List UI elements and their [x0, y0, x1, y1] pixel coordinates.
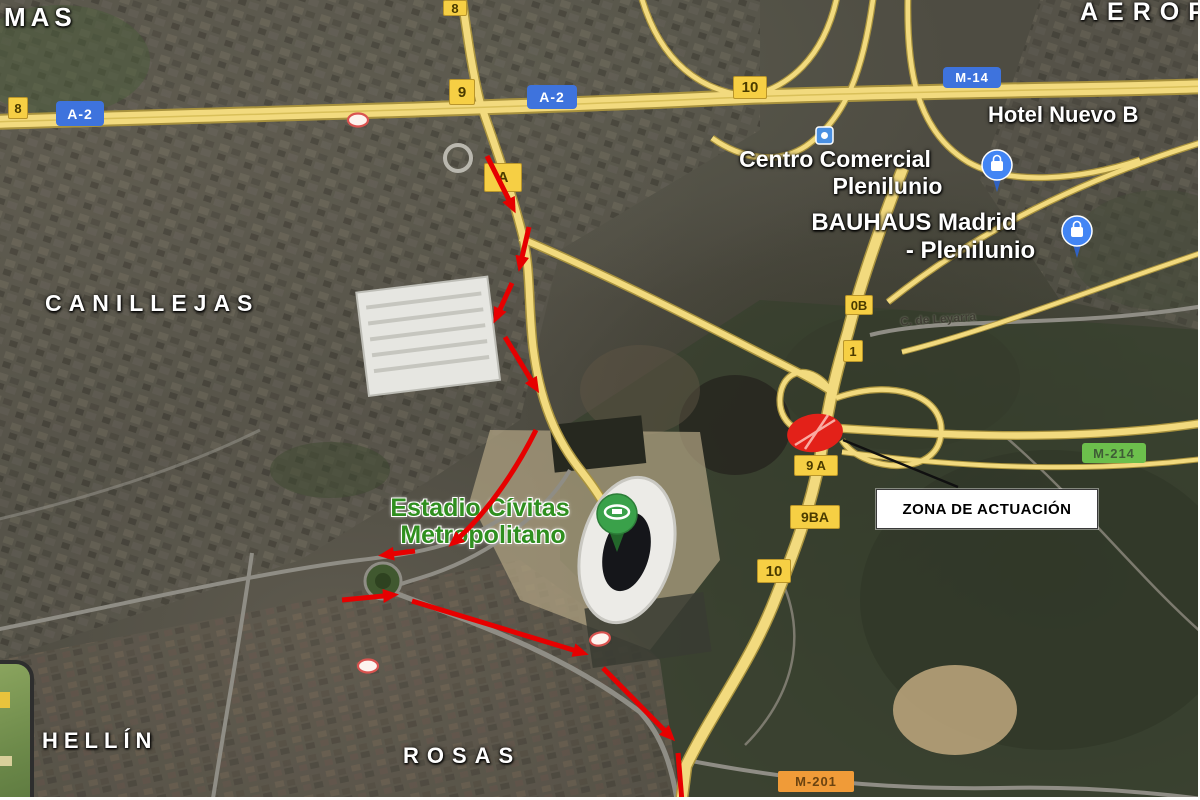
- poi-label-estadio-2: Metropolitano: [363, 521, 603, 550]
- district-label-canillejas: CANILLEJAS: [45, 290, 259, 317]
- district-label-rosas: ROSAS: [403, 743, 521, 769]
- stadium-pin[interactable]: [597, 494, 637, 552]
- street-label-leyarra: C. de Leyarra: [900, 309, 977, 328]
- route-badge-m14: M-14: [943, 67, 1001, 88]
- route-arrows: [342, 156, 682, 797]
- poi-label-bauhaus: BAUHAUS Madrid: [783, 209, 1045, 237]
- roundabout: [445, 145, 471, 171]
- buildings: [356, 277, 711, 668]
- poi-label-bauhaus-2: - Plenilunio: [858, 237, 1083, 265]
- map-inset-corner[interactable]: [0, 660, 34, 797]
- inset-road: [0, 692, 10, 708]
- route-badge-m201: M-201: [778, 771, 854, 792]
- screenshot: MAS AEROP Hotel Nuevo B Centro Comercial…: [0, 0, 1200, 800]
- exit-badge-10-top: 10: [733, 76, 767, 99]
- district-label-hellin: HELLÍN: [42, 728, 157, 754]
- route-badge-m214: M-214: [1082, 443, 1146, 463]
- poi-label-estadio-1: Estadio Cívitas: [360, 494, 600, 523]
- district-label-mas: MAS: [4, 2, 77, 33]
- satellite-map[interactable]: MAS AEROP Hotel Nuevo B Centro Comercial…: [0, 0, 1198, 797]
- exit-badge-9ba: 9BA: [790, 505, 840, 529]
- callout-pointer-line: [843, 440, 958, 487]
- route-badge-a2-left: A-2: [56, 101, 104, 126]
- district-label-aerop: AEROP: [1080, 0, 1198, 27]
- exit-badge-0b: 0B: [845, 295, 873, 315]
- exit-badge-8-top: 8: [443, 0, 467, 16]
- inset-road-2: [0, 756, 12, 766]
- exit-badge-a: A: [484, 163, 522, 192]
- zona-de-actuacion-callout: ZONA DE ACTUACIÓN: [876, 489, 1098, 529]
- exit-badge-9: 9: [449, 79, 475, 105]
- poi-label-centro-comercial: Centro Comercial: [700, 146, 970, 173]
- exit-badge-10-mid: 10: [757, 559, 791, 583]
- route-badge-a2-center: A-2: [527, 85, 577, 109]
- local-roads: [0, 305, 1198, 797]
- zona-ellipse: [785, 410, 846, 455]
- poi-label-plenilunio: Plenilunio: [775, 173, 1000, 200]
- poi-square-icon[interactable]: [816, 127, 833, 144]
- stadium: [564, 467, 689, 633]
- poi-label-hotel-nuevo: Hotel Nuevo B: [988, 102, 1138, 128]
- exit-badge-1: 1: [843, 340, 863, 362]
- green-roundabout: [365, 563, 401, 599]
- exit-badge-8-left: 8: [8, 97, 28, 119]
- road-restriction-oval: [348, 114, 611, 673]
- exit-badge-9a: 9 A: [794, 455, 838, 476]
